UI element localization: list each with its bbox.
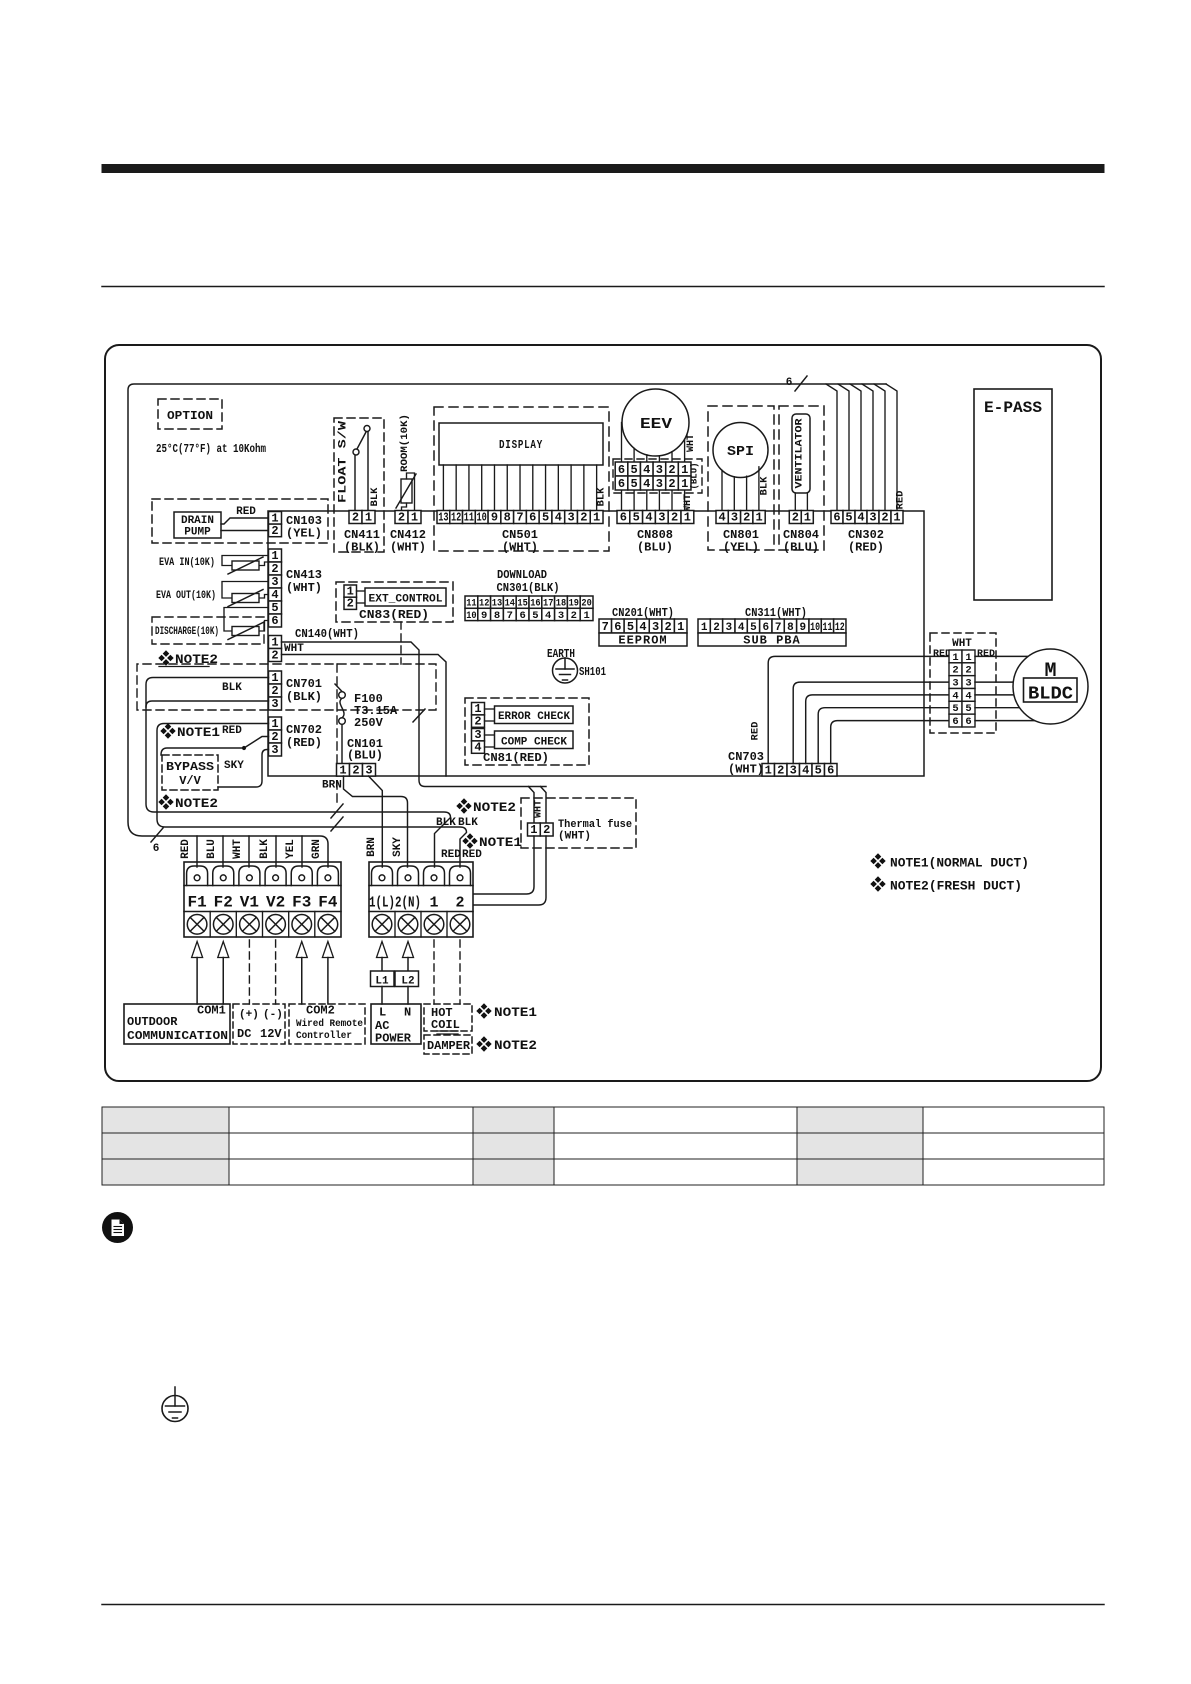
svg-text:2: 2 (271, 524, 278, 538)
svg-text:6: 6 (614, 620, 621, 634)
svg-text:Thermal fuse: Thermal fuse (558, 819, 632, 831)
svg-text:3: 3 (656, 463, 663, 477)
svg-text:NOTE2: NOTE2 (473, 800, 516, 815)
svg-text:(YEL): (YEL) (723, 541, 759, 555)
svg-text:7: 7 (507, 610, 513, 622)
svg-text:4: 4 (645, 511, 652, 525)
svg-text:5: 5 (271, 601, 278, 615)
svg-text:6: 6 (827, 763, 834, 777)
svg-text:NOTE1: NOTE1 (177, 725, 220, 740)
svg-text:3: 3 (567, 511, 574, 525)
svg-text:6: 6 (833, 511, 840, 525)
svg-text:CN81(RED): CN81(RED) (483, 751, 549, 765)
svg-text:9: 9 (481, 610, 487, 622)
svg-text:3: 3 (271, 743, 278, 757)
svg-text:1: 1 (765, 763, 772, 777)
svg-text:CN140(WHT): CN140(WHT) (295, 627, 359, 641)
svg-text:2: 2 (352, 763, 359, 777)
svg-text:3: 3 (731, 511, 738, 525)
svg-text:BRN: BRN (322, 780, 342, 792)
svg-text:NOTE1(NORMAL DUCT): NOTE1(NORMAL DUCT) (890, 856, 1029, 871)
svg-text:N: N (404, 1006, 411, 1020)
svg-text:CN311(WHT): CN311(WHT) (745, 606, 807, 620)
svg-text:SH101: SH101 (579, 665, 606, 679)
svg-text:V1: V1 (240, 894, 259, 912)
svg-text:1: 1 (681, 477, 688, 491)
svg-text:1: 1 (365, 511, 372, 525)
svg-text:(WHT): (WHT) (558, 831, 591, 843)
svg-text:(BLU): (BLU) (347, 749, 383, 763)
svg-text:4: 4 (555, 511, 562, 525)
svg-text:RED: RED (236, 506, 256, 518)
svg-text:(BLK): (BLK) (344, 541, 380, 555)
svg-text:(BLU): (BLU) (690, 462, 700, 489)
svg-text:1: 1 (677, 620, 684, 634)
svg-text:BLK: BLK (369, 487, 381, 507)
svg-text:2: 2 (352, 511, 359, 525)
svg-text:NOTE2: NOTE2 (175, 652, 218, 667)
svg-text:5: 5 (815, 763, 822, 777)
svg-text:COM2: COM2 (306, 1004, 335, 1018)
svg-text:SUB PBA: SUB PBA (743, 634, 800, 648)
svg-text:4: 4 (643, 477, 650, 491)
svg-text:WHT: WHT (232, 839, 244, 859)
svg-text:2: 2 (671, 511, 678, 525)
svg-text:1: 1 (804, 511, 811, 525)
svg-text:25°C(77°F) at 10Kohm: 25°C(77°F) at 10Kohm (156, 442, 266, 456)
svg-text:4: 4 (952, 690, 958, 702)
svg-text:2: 2 (474, 715, 481, 729)
svg-text:EEV: EEV (640, 416, 672, 433)
svg-text:2: 2 (271, 684, 278, 698)
svg-text:6: 6 (620, 511, 627, 525)
svg-text:CN201(WHT): CN201(WHT) (612, 606, 674, 620)
svg-text:E-PASS: E-PASS (984, 399, 1042, 417)
svg-text:CN413: CN413 (286, 568, 322, 582)
svg-text:ROOM(10K): ROOM(10K) (399, 414, 411, 472)
svg-text:ERROR CHECK: ERROR CHECK (498, 711, 570, 723)
svg-text:WHT: WHT (534, 800, 545, 818)
svg-text:(WHT): (WHT) (728, 763, 764, 777)
svg-text:4: 4 (474, 741, 481, 755)
svg-text:DC: DC (237, 1027, 251, 1041)
svg-text:2: 2 (743, 511, 750, 525)
svg-text:1: 1 (893, 511, 900, 525)
svg-text:V/V: V/V (179, 774, 201, 788)
svg-text:BYPASS: BYPASS (166, 760, 214, 774)
svg-text:BLK: BLK (458, 817, 478, 829)
svg-text:(+): (+) (239, 1009, 259, 1021)
svg-text:3: 3 (965, 677, 971, 689)
svg-text:1: 1 (339, 763, 346, 777)
svg-text:RED: RED (895, 491, 907, 510)
svg-text:4: 4 (271, 588, 278, 602)
svg-text:EVA OUT(10K): EVA OUT(10K) (156, 590, 216, 602)
svg-text:5: 5 (532, 610, 538, 622)
svg-text:1: 1 (952, 652, 958, 664)
svg-text:COMMUNICATION: COMMUNICATION (127, 1029, 228, 1043)
svg-text:2: 2 (347, 597, 354, 611)
svg-text:BLDC: BLDC (1028, 685, 1073, 705)
svg-text:(-): (-) (263, 1009, 283, 1021)
svg-text:1: 1 (530, 823, 537, 837)
svg-text:FLOAT S/W: FLOAT S/W (338, 420, 350, 503)
svg-text:3: 3 (790, 763, 797, 777)
svg-text:PUMP: PUMP (184, 527, 211, 539)
svg-text:1: 1 (583, 610, 589, 622)
svg-text:1: 1 (271, 636, 278, 650)
svg-text:WHT: WHT (952, 638, 972, 650)
svg-text:3: 3 (271, 697, 278, 711)
svg-text:1: 1 (965, 652, 971, 664)
svg-text:CN702: CN702 (286, 723, 322, 737)
svg-text:6: 6 (786, 377, 793, 389)
svg-text:BLK: BLK (222, 682, 242, 694)
svg-text:COIL: COIL (431, 1018, 460, 1032)
svg-text:2: 2 (271, 730, 278, 744)
svg-text:(WHT): (WHT) (390, 541, 426, 555)
svg-text:F2: F2 (214, 894, 233, 912)
svg-text:2: 2 (668, 463, 675, 477)
svg-text:5: 5 (965, 703, 971, 715)
svg-text:7: 7 (516, 511, 523, 525)
svg-text:3: 3 (365, 763, 372, 777)
svg-text:6: 6 (153, 843, 160, 855)
svg-text:(RED): (RED) (286, 736, 322, 750)
svg-text:2: 2 (571, 610, 577, 622)
svg-text:2: 2 (668, 477, 675, 491)
svg-text:EXT_CONTROL: EXT_CONTROL (369, 594, 443, 606)
svg-text:5: 5 (627, 620, 634, 634)
svg-text:5: 5 (542, 511, 549, 525)
svg-text:L1: L1 (375, 976, 389, 988)
svg-text:(YEL): (YEL) (286, 527, 322, 541)
svg-text:RED: RED (180, 839, 192, 859)
svg-text:10: 10 (477, 511, 487, 525)
svg-text:3: 3 (652, 620, 659, 634)
svg-text:DISPLAY: DISPLAY (499, 438, 543, 452)
svg-text:RED: RED (977, 649, 995, 660)
svg-text:NOTE1: NOTE1 (479, 835, 522, 850)
svg-text:3: 3 (952, 677, 958, 689)
svg-text:F4: F4 (318, 894, 338, 912)
svg-text:1(L): 1(L) (369, 895, 395, 912)
svg-text:WHT: WHT (686, 434, 697, 452)
svg-text:9: 9 (491, 511, 498, 525)
svg-text:OUTDOOR: OUTDOOR (127, 1015, 178, 1029)
svg-text:RED: RED (441, 849, 461, 861)
svg-text:RED: RED (462, 849, 482, 861)
svg-text:OPTION: OPTION (167, 409, 213, 423)
svg-text:3: 3 (658, 511, 665, 525)
svg-text:CN301(BLK): CN301(BLK) (497, 581, 560, 595)
svg-text:SKY: SKY (392, 837, 404, 857)
svg-text:(RED): (RED) (848, 541, 884, 555)
svg-text:BRN: BRN (366, 837, 378, 857)
svg-text:VENTILATOR: VENTILATOR (795, 419, 806, 489)
svg-text:2: 2 (455, 895, 464, 912)
svg-text:1: 1 (755, 511, 762, 525)
svg-text:2: 2 (665, 620, 672, 634)
svg-text:WHT: WHT (683, 494, 694, 512)
svg-text:13: 13 (438, 511, 448, 525)
svg-text:WHT: WHT (284, 643, 304, 655)
svg-text:(WHT): (WHT) (286, 581, 322, 595)
svg-text:5: 5 (952, 703, 958, 715)
svg-text:EEPROM: EEPROM (618, 634, 667, 648)
svg-text:4: 4 (965, 690, 971, 702)
svg-text:5: 5 (633, 511, 640, 525)
svg-text:NOTE2: NOTE2 (494, 1038, 537, 1053)
svg-text:NOTE1: NOTE1 (494, 1005, 537, 1020)
svg-text:(BLU): (BLU) (637, 541, 673, 555)
svg-text:(BLU): (BLU) (783, 541, 819, 555)
svg-text:2: 2 (792, 511, 799, 525)
svg-text:POWER: POWER (375, 1032, 412, 1046)
svg-text:1: 1 (271, 549, 278, 563)
svg-text:3: 3 (869, 511, 876, 525)
svg-text:4: 4 (639, 620, 646, 634)
svg-text:Controller: Controller (296, 1030, 352, 1042)
svg-text:COMP CHECK: COMP CHECK (501, 737, 567, 749)
svg-text:CN701: CN701 (286, 677, 322, 691)
svg-text:1: 1 (593, 511, 600, 525)
svg-text:2: 2 (271, 562, 278, 576)
svg-text:3: 3 (271, 575, 278, 589)
svg-text:DRAIN: DRAIN (181, 515, 214, 527)
svg-text:DOWNLOAD: DOWNLOAD (497, 568, 547, 582)
svg-text:8: 8 (494, 610, 500, 622)
svg-text:4: 4 (857, 511, 864, 525)
svg-text:SPI: SPI (727, 444, 754, 460)
svg-text:BLK: BLK (436, 817, 456, 829)
svg-text:5: 5 (631, 477, 638, 491)
svg-text:250V: 250V (354, 716, 384, 730)
svg-text:COM1: COM1 (197, 1004, 226, 1018)
svg-text:5: 5 (631, 463, 638, 477)
svg-text:Wired Remote: Wired Remote (296, 1018, 363, 1030)
svg-text:RED: RED (750, 722, 762, 741)
svg-text:BLK: BLK (759, 476, 771, 496)
svg-text:2: 2 (543, 823, 550, 837)
svg-text:7: 7 (602, 620, 609, 634)
svg-text:1: 1 (684, 511, 691, 525)
svg-text:NOTE2: NOTE2 (175, 796, 218, 811)
svg-text:2: 2 (580, 511, 587, 525)
svg-text:2: 2 (777, 763, 784, 777)
svg-text:6: 6 (952, 716, 958, 728)
svg-text:SKY: SKY (224, 760, 244, 772)
svg-text:(BLK): (BLK) (286, 690, 322, 704)
svg-text:DAMPER: DAMPER (427, 1039, 471, 1053)
svg-text:6: 6 (618, 477, 625, 491)
svg-text:11: 11 (464, 511, 474, 525)
svg-text:F1: F1 (187, 894, 206, 912)
svg-text:6: 6 (271, 614, 278, 628)
svg-text:6: 6 (519, 610, 525, 622)
svg-text:1: 1 (411, 511, 418, 525)
svg-text:F3: F3 (292, 894, 311, 912)
svg-text:2: 2 (271, 649, 278, 663)
svg-text:4: 4 (802, 763, 809, 777)
svg-text:NOTE2(FRESH DUCT): NOTE2(FRESH DUCT) (890, 879, 1022, 894)
svg-text:BLK: BLK (596, 487, 608, 507)
svg-text:YEL: YEL (285, 839, 297, 859)
svg-text:GRN: GRN (311, 839, 323, 859)
svg-text:10: 10 (466, 610, 476, 622)
svg-text:1: 1 (271, 671, 278, 685)
svg-text:EVA IN(10K): EVA IN(10K) (159, 557, 215, 569)
svg-text:8: 8 (504, 511, 511, 525)
svg-text:4: 4 (643, 463, 650, 477)
svg-text:2: 2 (952, 665, 958, 677)
svg-text:3: 3 (656, 477, 663, 491)
svg-text:(WHT): (WHT) (502, 541, 538, 555)
svg-text:2: 2 (965, 665, 971, 677)
svg-text:2: 2 (881, 511, 888, 525)
svg-text:12V: 12V (260, 1027, 282, 1041)
svg-text:12: 12 (451, 511, 461, 525)
svg-text:DISCHARGE(10K): DISCHARGE(10K) (155, 626, 219, 638)
svg-text:6: 6 (965, 716, 971, 728)
svg-text:6: 6 (529, 511, 536, 525)
svg-text:2(N): 2(N) (395, 895, 421, 912)
svg-text:6: 6 (618, 463, 625, 477)
svg-text:2: 2 (398, 511, 405, 525)
svg-text:BLK: BLK (259, 839, 271, 859)
svg-text:L2: L2 (401, 976, 414, 988)
svg-text:RED: RED (222, 725, 242, 737)
svg-text:BLU: BLU (206, 839, 218, 859)
svg-text:1: 1 (271, 717, 278, 731)
svg-text:5: 5 (845, 511, 852, 525)
svg-text:CN83(RED): CN83(RED) (359, 608, 429, 622)
svg-text:L: L (379, 1006, 386, 1020)
svg-text:1: 1 (681, 463, 688, 477)
svg-text:4: 4 (545, 610, 551, 622)
svg-text:4: 4 (719, 511, 726, 525)
svg-text:3: 3 (558, 610, 564, 622)
svg-text:1: 1 (429, 895, 438, 912)
svg-text:V2: V2 (266, 894, 285, 912)
